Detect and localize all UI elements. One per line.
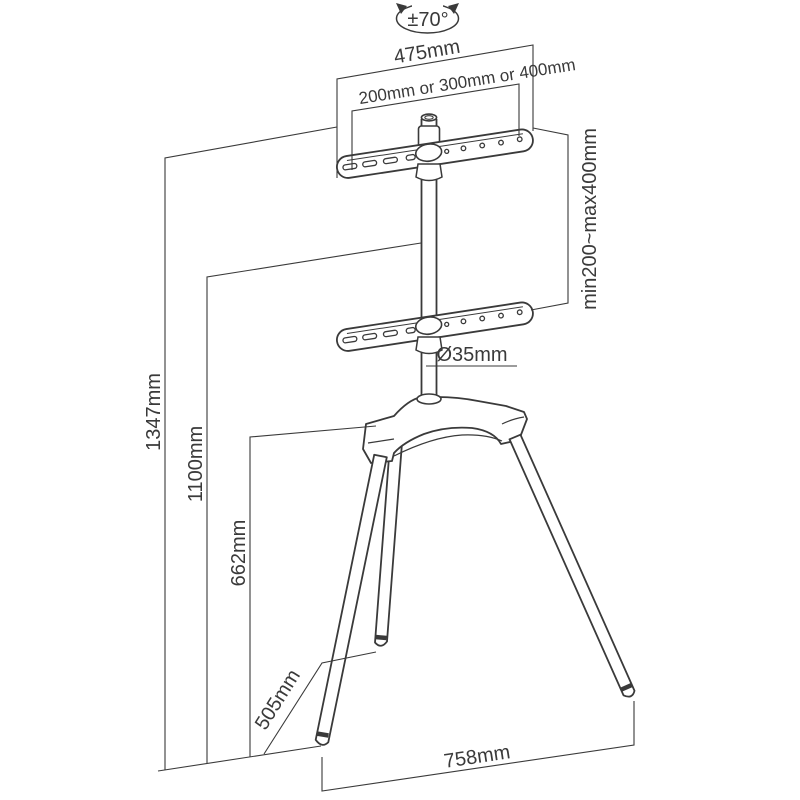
dim-line-vesa-height [531,128,568,310]
hub-height-label: 662mm [228,520,250,587]
pole-height-label: 1100mm [185,426,207,502]
rotation-indicator: ±70° [396,0,459,33]
top-bracket-collar [416,164,442,181]
front-left-leg [316,455,387,745]
vesa-width-label: 200mm or 300mm or 400mm [357,55,576,108]
pole-top-cap [421,114,436,121]
rear-foot-cap [376,637,387,638]
base-width-label: 758mm [443,741,512,773]
left-foot-cap [317,734,329,736]
floor-reference-line [158,746,321,771]
diagram-page: ±70° 475mm 200mm or 300mm or 400mm min20… [0,0,800,800]
rotation-range-label: ±70° [407,9,448,31]
front-right-leg [510,435,635,697]
vesa-height-label: min200~max400mm [579,128,601,310]
pole-socket [417,394,441,404]
base-depth-label: 505mm [251,666,305,734]
pole-diameter-label: Ø35mm [436,344,507,366]
total-height-label: 1347mm [143,373,165,451]
tv-stand-dimension-diagram: ±70° 475mm 200mm or 300mm or 400mm min20… [0,0,800,800]
arc-gap [412,0,443,7]
tripod-hub [363,397,527,463]
